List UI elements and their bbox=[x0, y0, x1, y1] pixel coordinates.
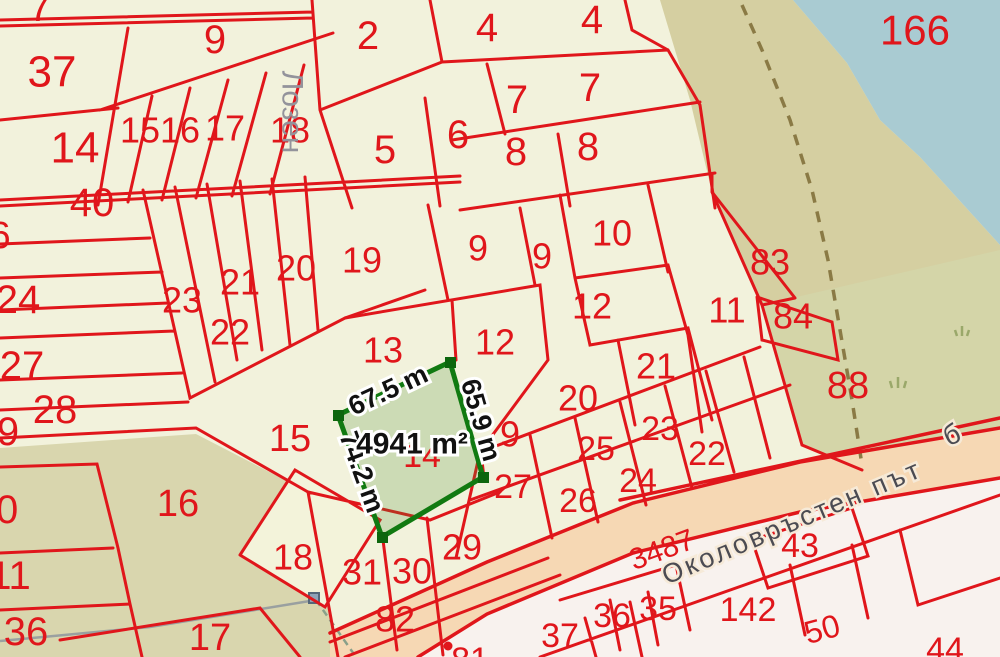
parcel-number-label: 9 bbox=[468, 228, 488, 269]
parcel-number-label: 9 bbox=[204, 18, 226, 62]
parcel-number-label: 26 bbox=[559, 482, 597, 520]
cadastral-map-viewport[interactable]: 7379244775688144015161718624272891011362… bbox=[0, 0, 1000, 657]
parcel-number-label: 8 bbox=[505, 130, 527, 174]
parcel-number-label: 11 bbox=[0, 554, 31, 598]
parcel-number-label: 30 bbox=[392, 551, 432, 592]
parcel-number-label: 16 bbox=[160, 110, 200, 151]
parcel-number-label: 18 bbox=[273, 537, 313, 578]
parcel-number-label: 7 bbox=[579, 66, 601, 110]
parcel-number-label: 31 bbox=[342, 552, 382, 593]
parcel-number-label: 16 bbox=[157, 483, 199, 525]
place-name-label: Лозен bbox=[276, 71, 309, 154]
parcel-number-label: 9 bbox=[532, 236, 552, 277]
parcel-number-label: 36 bbox=[4, 610, 49, 654]
parcel-number-label: 21 bbox=[220, 262, 260, 303]
parcel-number-label: 15 bbox=[120, 110, 160, 151]
parcel-number-label: 15 bbox=[269, 418, 311, 460]
parcel-number-label: 14 bbox=[51, 124, 100, 173]
parcel-number-label: 12 bbox=[475, 322, 515, 363]
parcel-number-label: 4 bbox=[581, 0, 603, 42]
parcel-number-label: 9 bbox=[0, 410, 19, 454]
parcel-number-label: 24 bbox=[619, 462, 657, 500]
parcel-number-label: 88 bbox=[827, 365, 869, 407]
parcel-number-label: 8 bbox=[577, 125, 599, 169]
parcel-number-label: 28 bbox=[33, 388, 78, 432]
parcel-number-label: 23 bbox=[162, 280, 202, 321]
parcel-number-label: 10 bbox=[592, 213, 632, 254]
parcel-number-label: 7 bbox=[29, 0, 51, 30]
parcel-number-label: 6 bbox=[447, 113, 469, 157]
parcel-number-label: 6 bbox=[0, 215, 11, 257]
parcel-number-label: 24 bbox=[0, 278, 40, 322]
parcel-number-label: 44 bbox=[926, 631, 964, 657]
parcel-number-label: 7 bbox=[506, 78, 528, 122]
parcel-number-label: 27 bbox=[0, 344, 44, 388]
parcel-number-label: 36 bbox=[593, 597, 631, 635]
parcel-number-label: 11 bbox=[708, 290, 745, 331]
parcel-number-label: 166 bbox=[880, 7, 950, 54]
map-canvas[interactable]: 7379244775688144015161718624272891011362… bbox=[0, 0, 1000, 657]
parcel-number-label: 2 bbox=[357, 14, 379, 58]
parcel-number-label: 29 bbox=[442, 527, 482, 568]
parcel-number-label: 23 bbox=[641, 410, 679, 448]
parcel-number-label: 22 bbox=[210, 312, 250, 353]
parcel-number-label: 4 bbox=[476, 6, 498, 50]
parcel-number-label: 22 bbox=[688, 435, 726, 473]
parcel-number-label: 20 bbox=[276, 248, 316, 289]
parcel-number-label: 21 bbox=[636, 346, 676, 387]
parcel-number-label: 27 bbox=[494, 468, 532, 506]
parcel-number-label: 37 bbox=[541, 617, 579, 655]
parcel-number-label: 12 bbox=[572, 286, 612, 327]
parcel-number-label: 19 bbox=[342, 240, 382, 281]
parcel-number-label: 83 bbox=[750, 242, 790, 283]
parcel-number-label: 20 bbox=[558, 378, 598, 419]
parcel-number-label: 35 bbox=[639, 590, 677, 628]
parcel-number-label: 13 bbox=[363, 330, 403, 371]
parcel-number-label: 40 bbox=[70, 181, 115, 225]
parcel-number-label: 10 bbox=[0, 488, 18, 532]
parcel-number-label: 84 bbox=[773, 296, 813, 337]
parcel-number-label: 142 bbox=[720, 591, 777, 629]
parcel-number-label: 37 bbox=[28, 48, 77, 97]
parcel-number-label: 17 bbox=[205, 108, 245, 149]
measurement-label: 4941 m² bbox=[356, 428, 468, 461]
parcel-number-label: 5 bbox=[374, 128, 396, 172]
parcel-number-label: 81 bbox=[451, 641, 489, 657]
parcel-number-label: 17 bbox=[189, 617, 231, 657]
parcel-number-label: 25 bbox=[577, 430, 615, 468]
parcel-number-label: 82 bbox=[375, 599, 415, 640]
